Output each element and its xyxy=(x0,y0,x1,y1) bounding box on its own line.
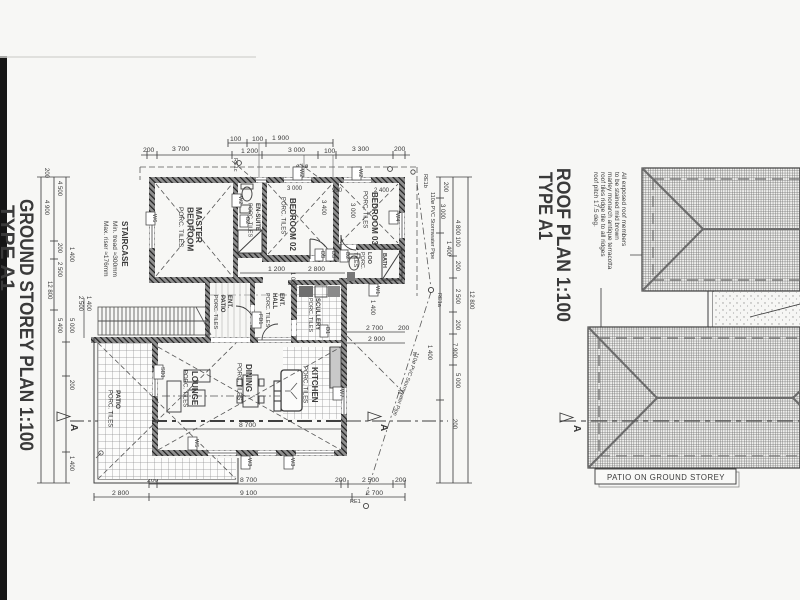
svg-text:W3: W3 xyxy=(289,458,295,466)
svg-text:1 400: 1 400 xyxy=(369,300,375,316)
svg-text:D2: D2 xyxy=(344,252,350,259)
svg-text:roof pitch 17.5 deg.: roof pitch 17.5 deg. xyxy=(592,172,599,227)
svg-text:2 700: 2 700 xyxy=(366,490,383,497)
svg-text:1 200: 1 200 xyxy=(241,148,258,155)
svg-text:BEDROOM 03: BEDROOM 03 xyxy=(370,192,379,245)
svg-text:SD1: SD1 xyxy=(159,367,165,378)
svg-text:2 800: 2 800 xyxy=(112,490,129,497)
svg-text:ENT.: ENT. xyxy=(226,295,232,308)
svg-text:PORC.: PORC. xyxy=(359,252,365,270)
svg-text:GROUND STOREY PLAN 1:100: GROUND STOREY PLAN 1:100 xyxy=(15,199,36,451)
svg-text:200: 200 xyxy=(335,477,347,484)
svg-text:200: 200 xyxy=(454,320,460,331)
svg-text:W7: W7 xyxy=(338,389,344,397)
svg-text:PORC. TILES: PORC. TILES xyxy=(362,191,368,228)
svg-text:3 000: 3 000 xyxy=(349,203,355,219)
svg-text:5 400: 5 400 xyxy=(56,318,62,334)
svg-text:TYPE A1: TYPE A1 xyxy=(534,172,555,240)
svg-text:5 000: 5 000 xyxy=(454,373,460,389)
svg-text:LOO: LOO xyxy=(366,252,372,265)
svg-text:W2: W2 xyxy=(298,169,304,177)
svg-text:200: 200 xyxy=(43,168,49,179)
svg-text:5 000: 5 000 xyxy=(68,318,74,334)
svg-text:LOUNGE: LOUNGE xyxy=(190,371,199,406)
svg-text:1 900: 1 900 xyxy=(272,135,289,142)
svg-text:2 500: 2 500 xyxy=(77,296,83,312)
svg-text:PORC. TILES: PORC. TILES xyxy=(236,363,242,400)
svg-text:1 000: 1 000 xyxy=(289,272,295,288)
svg-text:W6: W6 xyxy=(151,214,157,222)
svg-text:200: 200 xyxy=(56,243,62,254)
svg-text:3 000: 3 000 xyxy=(288,147,305,154)
svg-text:STAIRCASE: STAIRCASE xyxy=(120,221,129,267)
svg-text:W1: W1 xyxy=(374,286,380,294)
svg-text:8 700: 8 700 xyxy=(240,477,257,484)
svg-text:D3: D3 xyxy=(330,251,336,258)
svg-text:TYPE A1: TYPE A1 xyxy=(0,205,17,291)
svg-text:All exposed roof members: All exposed roof members xyxy=(620,172,627,246)
svg-text:SCULLERY: SCULLERY xyxy=(314,298,320,330)
svg-text:Ie: Ie xyxy=(411,352,417,356)
svg-text:2 400: 2 400 xyxy=(374,188,390,194)
svg-text:PATIO ON GROUND STOREY: PATIO ON GROUND STOREY xyxy=(607,473,725,482)
svg-text:D2: D2 xyxy=(244,217,250,224)
svg-text:roof tiles ridge tile to all r: roof tiles ridge tile to all ridges xyxy=(599,172,606,257)
svg-text:110ø PVC Stormwater Pipe: 110ø PVC Stormwater Pipe xyxy=(429,192,435,259)
svg-text:200: 200 xyxy=(395,477,407,484)
svg-text:Ie: Ie xyxy=(396,390,402,394)
svg-text:Min. tread ≈300mm: Min. tread ≈300mm xyxy=(111,221,118,277)
svg-text:3 400: 3 400 xyxy=(320,200,326,216)
svg-text:BATH: BATH xyxy=(381,253,387,268)
svg-text:2 500: 2 500 xyxy=(56,262,62,278)
svg-text:4 500: 4 500 xyxy=(56,181,62,197)
svg-text:RE1a: RE1a xyxy=(436,293,442,308)
svg-text:4 900: 4 900 xyxy=(43,200,49,216)
svg-text:W3: W3 xyxy=(246,458,252,466)
svg-text:1 200: 1 200 xyxy=(268,266,285,273)
svg-text:7 900: 7 900 xyxy=(451,343,457,359)
svg-text:PORC. TILES: PORC. TILES xyxy=(307,298,313,332)
svg-text:A: A xyxy=(378,424,389,431)
svg-text:PORC. TILES: PORC. TILES xyxy=(107,390,113,427)
svg-text:A: A xyxy=(68,424,79,431)
svg-text:TILES: TILES xyxy=(352,252,358,268)
svg-text:PATIO: PATIO xyxy=(114,390,121,409)
svg-text:DINING: DINING xyxy=(244,364,253,392)
svg-text:3 300: 3 300 xyxy=(352,146,369,153)
svg-text:2 500: 2 500 xyxy=(454,289,460,305)
svg-text:200: 200 xyxy=(394,146,406,153)
svg-text:PORC. TILES: PORC. TILES xyxy=(280,197,286,234)
svg-text:9 100: 9 100 xyxy=(240,490,257,497)
svg-text:2 700: 2 700 xyxy=(366,325,383,332)
svg-text:PORC. TILES: PORC. TILES xyxy=(264,293,270,327)
svg-text:1 400: 1 400 xyxy=(68,456,74,472)
svg-text:200: 200 xyxy=(451,419,457,430)
svg-text:A: A xyxy=(571,425,582,432)
svg-text:200: 200 xyxy=(143,147,155,154)
svg-text:marley monarch antique terraco: marley monarch antique terracotta xyxy=(606,172,613,270)
svg-text:100: 100 xyxy=(252,136,264,143)
svg-text:4 800 100: 4 800 100 xyxy=(454,220,460,247)
svg-text:12 800: 12 800 xyxy=(46,281,52,300)
svg-text:100: 100 xyxy=(324,148,336,155)
svg-text:RE1b: RE1b xyxy=(422,174,428,188)
svg-text:200: 200 xyxy=(454,261,460,272)
svg-text:FD1: FD1 xyxy=(257,314,263,324)
svg-text:3 700: 3 700 xyxy=(172,146,189,153)
svg-text:200: 200 xyxy=(398,325,410,332)
svg-text:KITCHEN: KITCHEN xyxy=(310,367,319,403)
svg-text:HALL: HALL xyxy=(271,293,277,309)
svg-text:RE1c: RE1c xyxy=(232,158,238,172)
svg-text:1 400: 1 400 xyxy=(85,296,91,312)
svg-text:ENT.: ENT. xyxy=(278,293,284,306)
svg-text:W4: W4 xyxy=(394,213,400,221)
svg-text:PORC. TILES: PORC. TILES xyxy=(177,207,184,248)
svg-text:EN-SUITE: EN-SUITE xyxy=(254,203,260,231)
svg-text:D1: D1 xyxy=(324,327,330,334)
svg-text:1 400: 1 400 xyxy=(68,247,74,263)
svg-text:RE1: RE1 xyxy=(350,499,361,505)
svg-text:200: 200 xyxy=(442,182,448,193)
svg-text:D3: D3 xyxy=(319,251,325,258)
svg-text:W2: W2 xyxy=(237,196,243,204)
svg-text:to be stained mid brown: to be stained mid brown xyxy=(613,172,620,240)
svg-text:900: 900 xyxy=(332,188,343,194)
svg-text:1 400: 1 400 xyxy=(445,241,451,257)
svg-text:1 400: 1 400 xyxy=(426,345,432,361)
svg-text:BEDROOM 02: BEDROOM 02 xyxy=(288,198,297,251)
svg-text:3 000: 3 000 xyxy=(439,204,445,220)
svg-text:2 800: 2 800 xyxy=(308,266,325,273)
svg-text:PATIO: PATIO xyxy=(219,295,225,313)
svg-text:W5: W5 xyxy=(193,439,199,447)
svg-text:BEDROOM: BEDROOM xyxy=(186,207,196,251)
svg-text:12 800: 12 800 xyxy=(468,291,474,310)
svg-text:2 900: 2 900 xyxy=(368,336,385,343)
svg-text:100: 100 xyxy=(230,136,242,143)
svg-text:PORC. TILES: PORC. TILES xyxy=(212,295,218,329)
svg-text:3 000: 3 000 xyxy=(287,186,303,192)
svg-text:W2: W2 xyxy=(357,169,363,177)
svg-text:8 700: 8 700 xyxy=(239,422,256,429)
svg-text:Max. riser ≈176mm: Max. riser ≈176mm xyxy=(102,221,109,277)
svg-text:200: 200 xyxy=(68,380,74,391)
